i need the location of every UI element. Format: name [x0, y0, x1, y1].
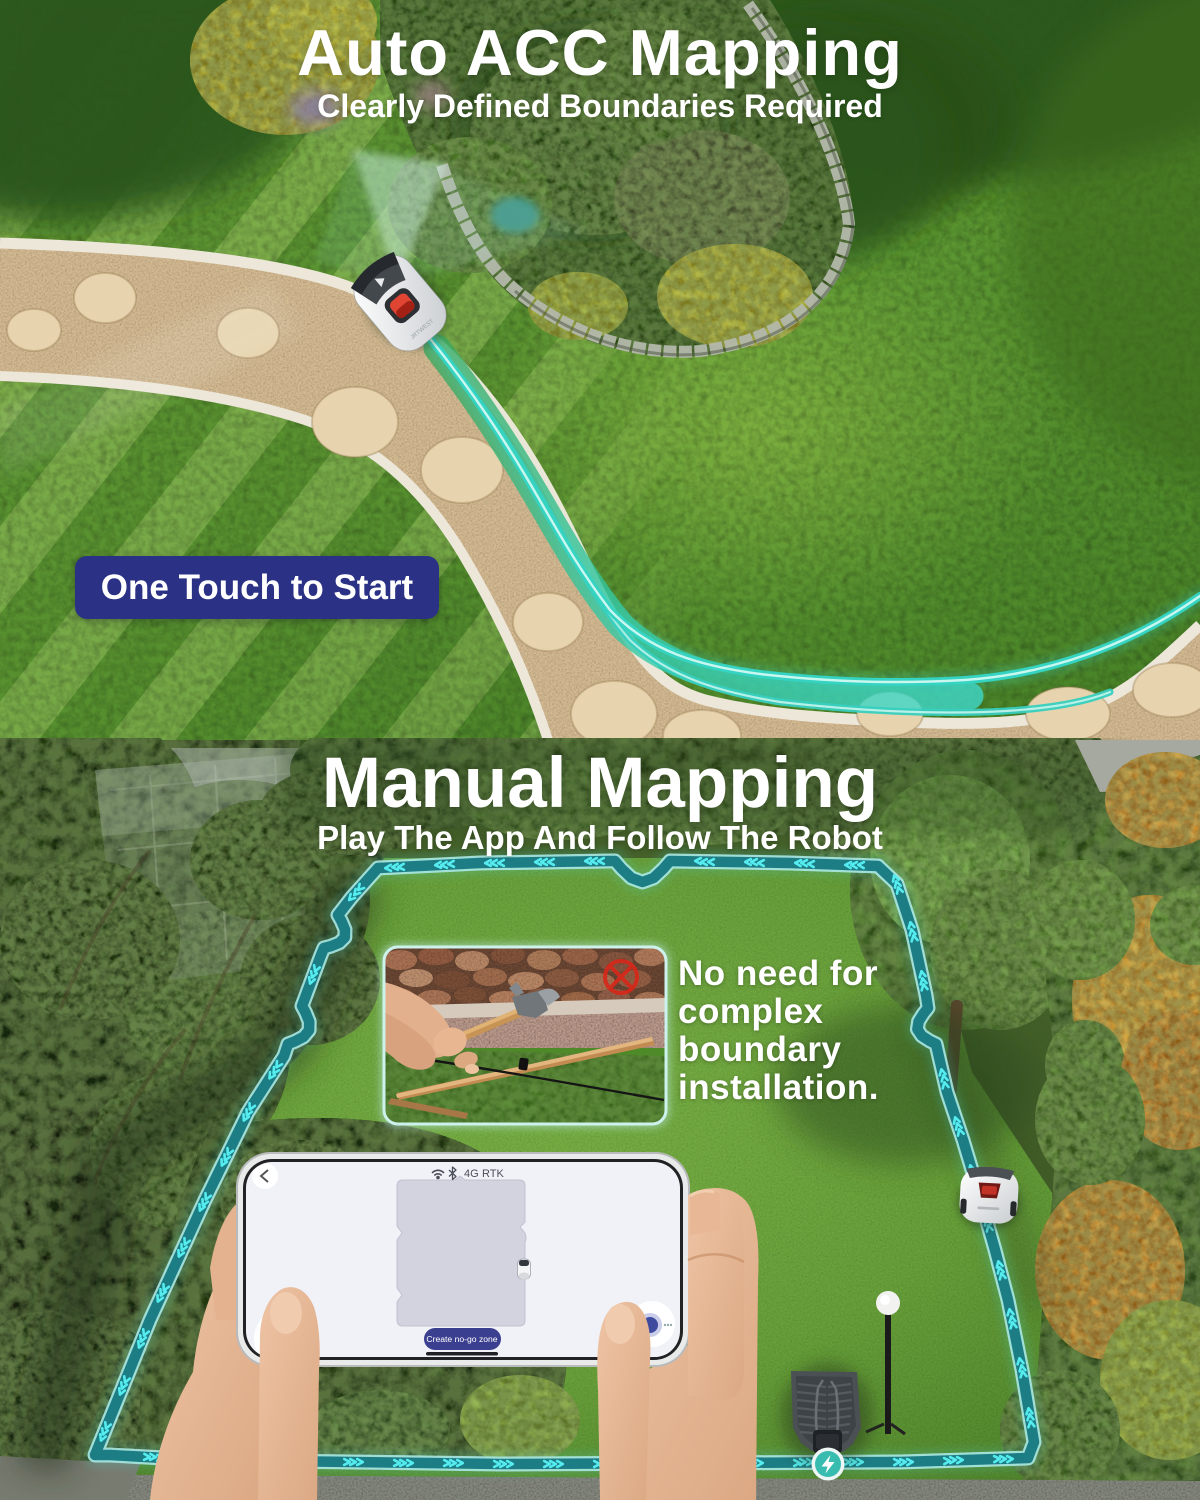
svg-text:4G: 4G	[464, 1168, 479, 1180]
svg-text:Create no-go zone: Create no-go zone	[426, 1334, 497, 1344]
svg-text:RTK: RTK	[482, 1168, 504, 1180]
